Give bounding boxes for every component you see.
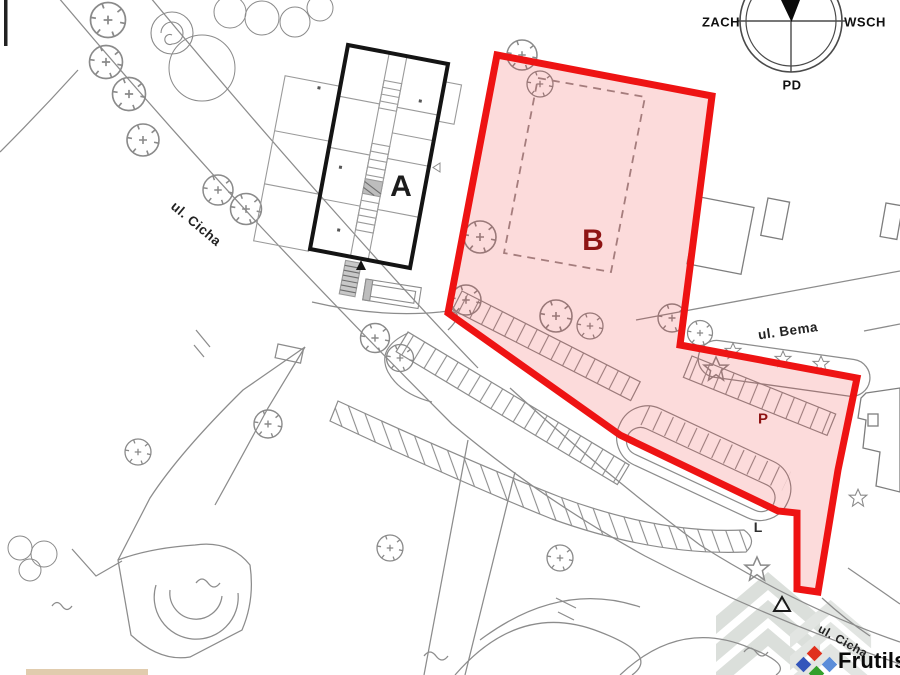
compass-west-label: ZACH [702,16,740,29]
compass-needle-icon [781,0,800,22]
scan-edge-strip [26,669,148,675]
building-a-label: A [390,172,412,202]
parking-label: P [758,412,768,427]
compass-south-label: PD [782,79,801,92]
zone-b-label: B [582,226,604,256]
spiral-path-icon [151,12,193,54]
triangle-marker-small-icon [433,163,440,172]
building-a-outline [310,45,448,268]
building-a [247,35,465,309]
compass-rose [738,0,845,72]
site-plan-page: ul. Cicha ul. Bema ul. Cicha A B P L ZAC… [0,0,900,675]
l-marker-label: L [754,520,763,534]
compass-east-label: WSCH [844,16,886,29]
frutils-brand-text[interactable]: Frutils [838,648,900,674]
